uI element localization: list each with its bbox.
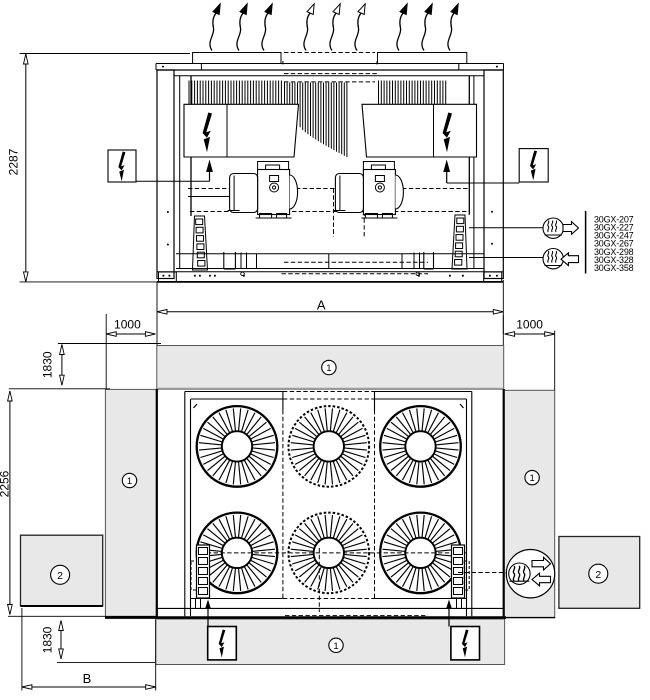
svg-text:1830: 1830 (40, 351, 54, 378)
svg-text:1830: 1830 (41, 626, 55, 653)
svg-text:1: 1 (127, 476, 132, 487)
svg-text:2: 2 (595, 569, 601, 581)
svg-text:1: 1 (529, 473, 534, 484)
svg-text:30GX-358: 30GX-358 (594, 263, 634, 273)
svg-text:1: 1 (333, 641, 338, 652)
svg-text:2256: 2256 (0, 470, 12, 497)
svg-text:1: 1 (326, 363, 331, 374)
svg-text:2: 2 (57, 570, 63, 582)
svg-text:2287: 2287 (7, 148, 21, 175)
svg-text:A: A (317, 298, 326, 313)
svg-text:1000: 1000 (516, 318, 543, 332)
svg-text:B: B (83, 671, 92, 686)
svg-text:1000: 1000 (114, 318, 141, 332)
